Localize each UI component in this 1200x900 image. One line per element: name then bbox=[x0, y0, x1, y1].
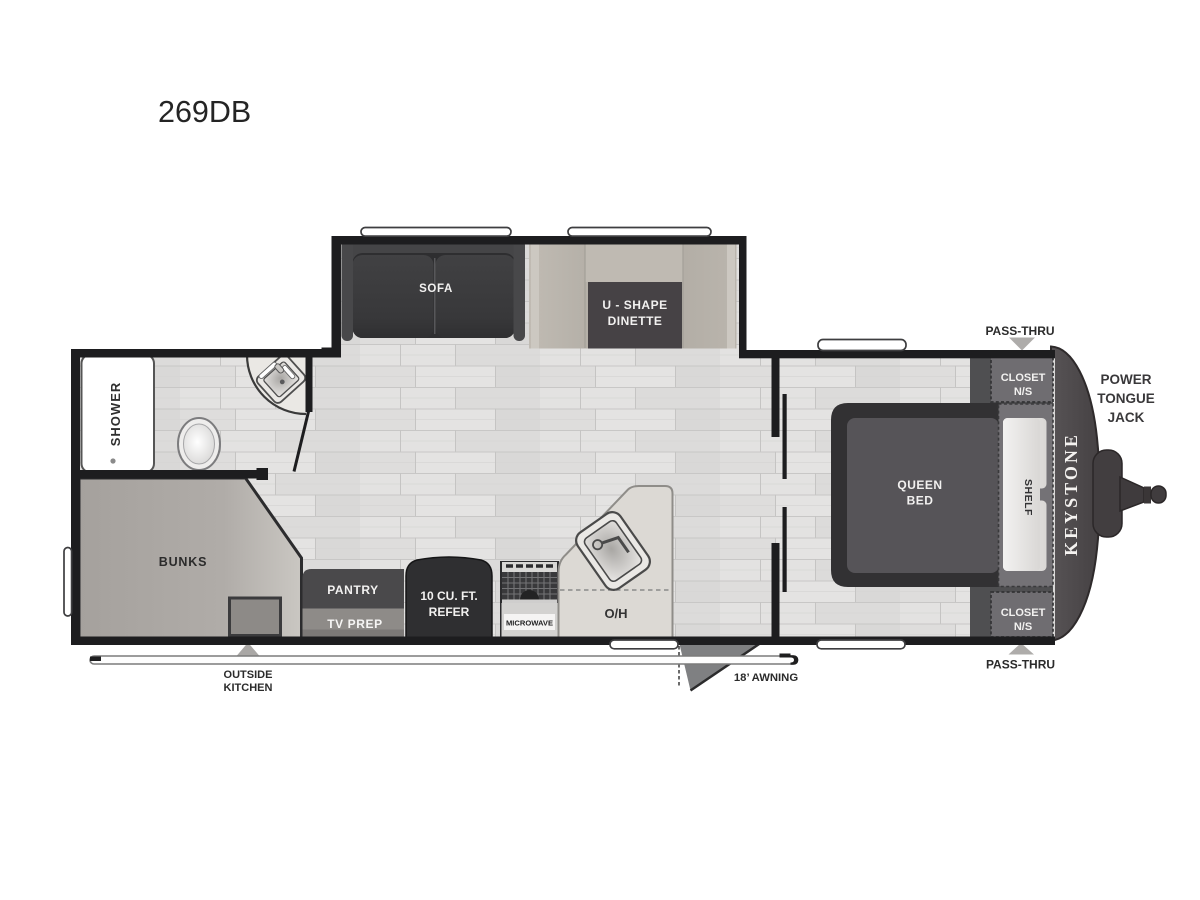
svg-text:KITCHEN: KITCHEN bbox=[224, 682, 273, 694]
svg-text:BED: BED bbox=[907, 494, 934, 508]
svg-text:N/S: N/S bbox=[1014, 621, 1032, 633]
svg-text:U - SHAPE: U - SHAPE bbox=[602, 298, 667, 312]
svg-text:SHELF: SHELF bbox=[1022, 479, 1034, 516]
svg-text:BUNKS: BUNKS bbox=[159, 555, 207, 569]
svg-text:PASS-THRU: PASS-THRU bbox=[986, 658, 1055, 672]
svg-text:REFER: REFER bbox=[429, 605, 470, 619]
svg-text:POWER: POWER bbox=[1100, 372, 1151, 387]
svg-text:TV PREP: TV PREP bbox=[327, 617, 383, 631]
svg-text:PANTRY: PANTRY bbox=[327, 583, 379, 597]
svg-text:O/H: O/H bbox=[604, 606, 627, 621]
svg-text:DINETTE: DINETTE bbox=[608, 314, 663, 328]
svg-text:TONGUE: TONGUE bbox=[1097, 391, 1155, 406]
svg-text:SOFA: SOFA bbox=[419, 283, 453, 295]
svg-text:N/S: N/S bbox=[1014, 386, 1032, 398]
svg-text:OUTSIDE: OUTSIDE bbox=[224, 669, 273, 681]
svg-text:CLOSET: CLOSET bbox=[1001, 372, 1046, 384]
svg-text:KEYSTONE: KEYSTONE bbox=[1061, 432, 1081, 556]
svg-text:CLOSET: CLOSET bbox=[1001, 607, 1046, 619]
svg-text:18’ AWNING: 18’ AWNING bbox=[734, 672, 798, 684]
svg-text:JACK: JACK bbox=[1108, 410, 1145, 425]
svg-text:PASS-THRU: PASS-THRU bbox=[985, 324, 1054, 338]
svg-text:MICROWAVE: MICROWAVE bbox=[506, 619, 553, 628]
svg-text:QUEEN: QUEEN bbox=[897, 478, 942, 492]
svg-text:10 CU. FT.: 10 CU. FT. bbox=[420, 589, 477, 603]
svg-text:269DB: 269DB bbox=[158, 95, 251, 129]
svg-text:SHOWER: SHOWER bbox=[108, 382, 123, 447]
